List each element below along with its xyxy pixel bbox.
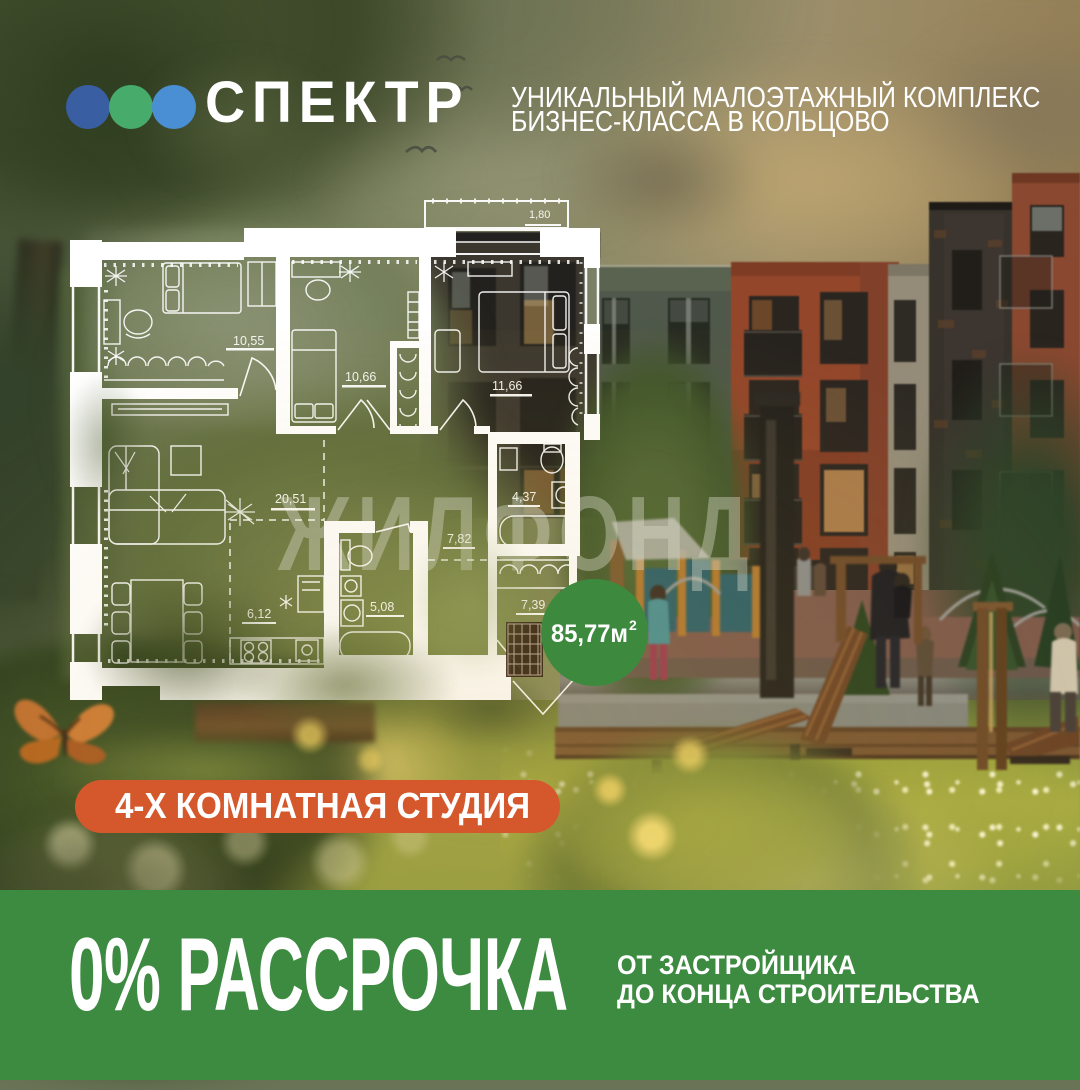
svg-text:1,80: 1,80 [529,209,550,221]
